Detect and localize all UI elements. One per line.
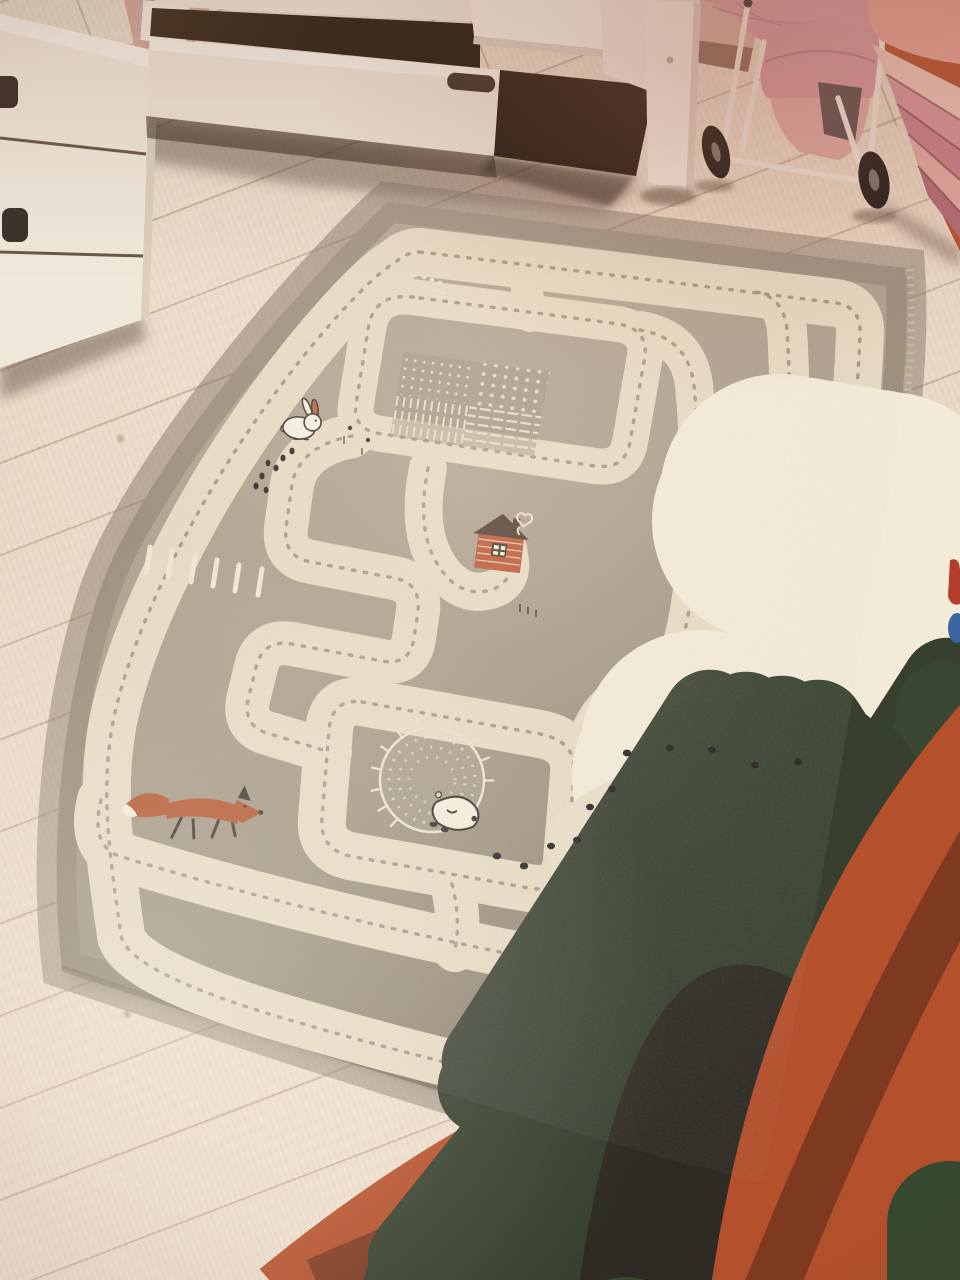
scene-art xyxy=(0,0,960,1280)
bedroom-photo: { "scene": { "type": "photograph", "sett… xyxy=(0,0,960,1280)
drawer-handle xyxy=(0,76,18,108)
dresser xyxy=(0,14,158,368)
dresser-front xyxy=(0,30,150,368)
rug-sheen xyxy=(57,202,907,1183)
red-toy xyxy=(948,559,960,604)
post-shadow xyxy=(640,187,696,205)
bed-post xyxy=(645,0,694,194)
wheel-shadow xyxy=(694,180,734,192)
drawer-handle xyxy=(2,208,28,242)
bolt xyxy=(667,57,674,64)
